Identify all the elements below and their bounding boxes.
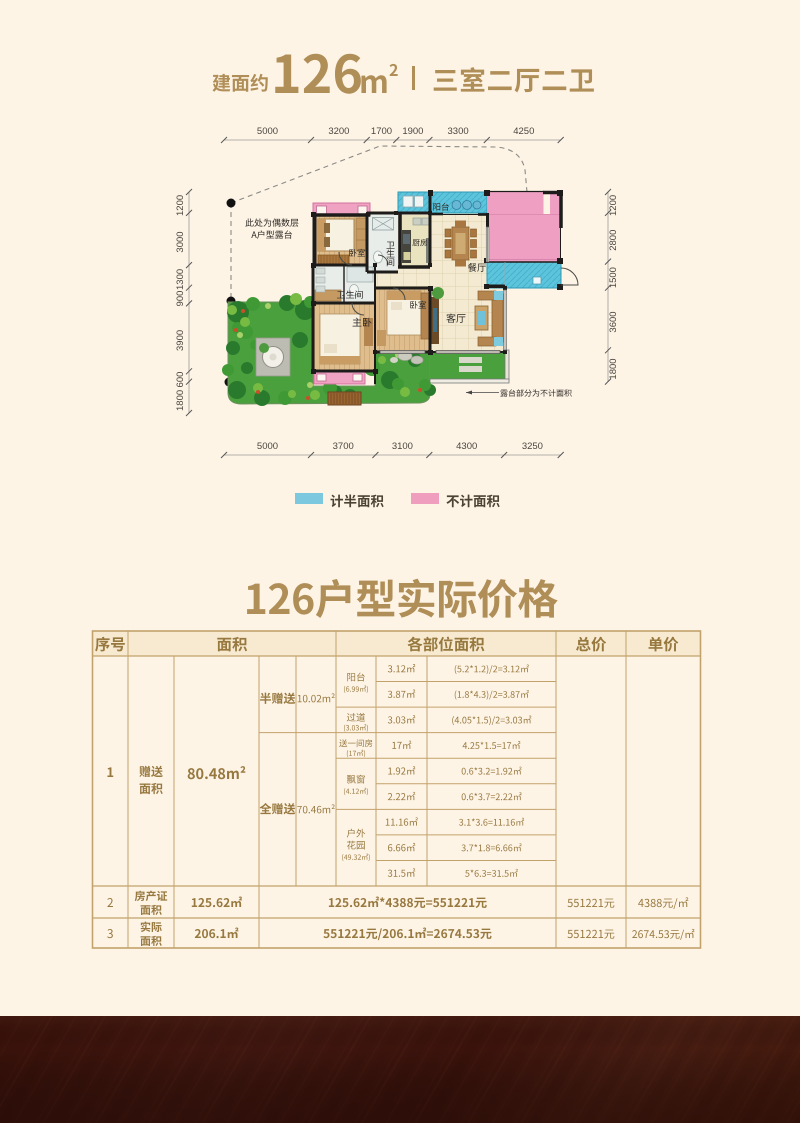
svg-text:5000: 5000 bbox=[257, 126, 278, 137]
svg-text:3700: 3700 bbox=[333, 441, 354, 452]
svg-text:3000: 3000 bbox=[175, 231, 186, 252]
svg-text:3200: 3200 bbox=[328, 126, 349, 137]
svg-text:3600: 3600 bbox=[608, 311, 619, 332]
svg-text:600: 600 bbox=[175, 372, 186, 388]
svg-text:1800: 1800 bbox=[608, 358, 619, 379]
svg-text:3900: 3900 bbox=[175, 330, 186, 351]
svg-text:900: 900 bbox=[175, 291, 186, 307]
svg-text:1800: 1800 bbox=[175, 390, 186, 411]
svg-text:4300: 4300 bbox=[456, 441, 477, 452]
svg-text:1300: 1300 bbox=[175, 269, 186, 290]
svg-text:3100: 3100 bbox=[392, 441, 413, 452]
svg-text:1500: 1500 bbox=[608, 267, 619, 288]
svg-text:1200: 1200 bbox=[175, 195, 186, 216]
svg-text:2800: 2800 bbox=[608, 230, 619, 251]
svg-text:5000: 5000 bbox=[257, 441, 278, 452]
svg-text:4250: 4250 bbox=[513, 126, 534, 137]
svg-text:1700: 1700 bbox=[371, 126, 392, 137]
svg-text:1900: 1900 bbox=[402, 126, 423, 137]
svg-text:1200: 1200 bbox=[608, 195, 619, 216]
svg-text:3300: 3300 bbox=[448, 126, 469, 137]
svg-text:3250: 3250 bbox=[522, 441, 543, 452]
